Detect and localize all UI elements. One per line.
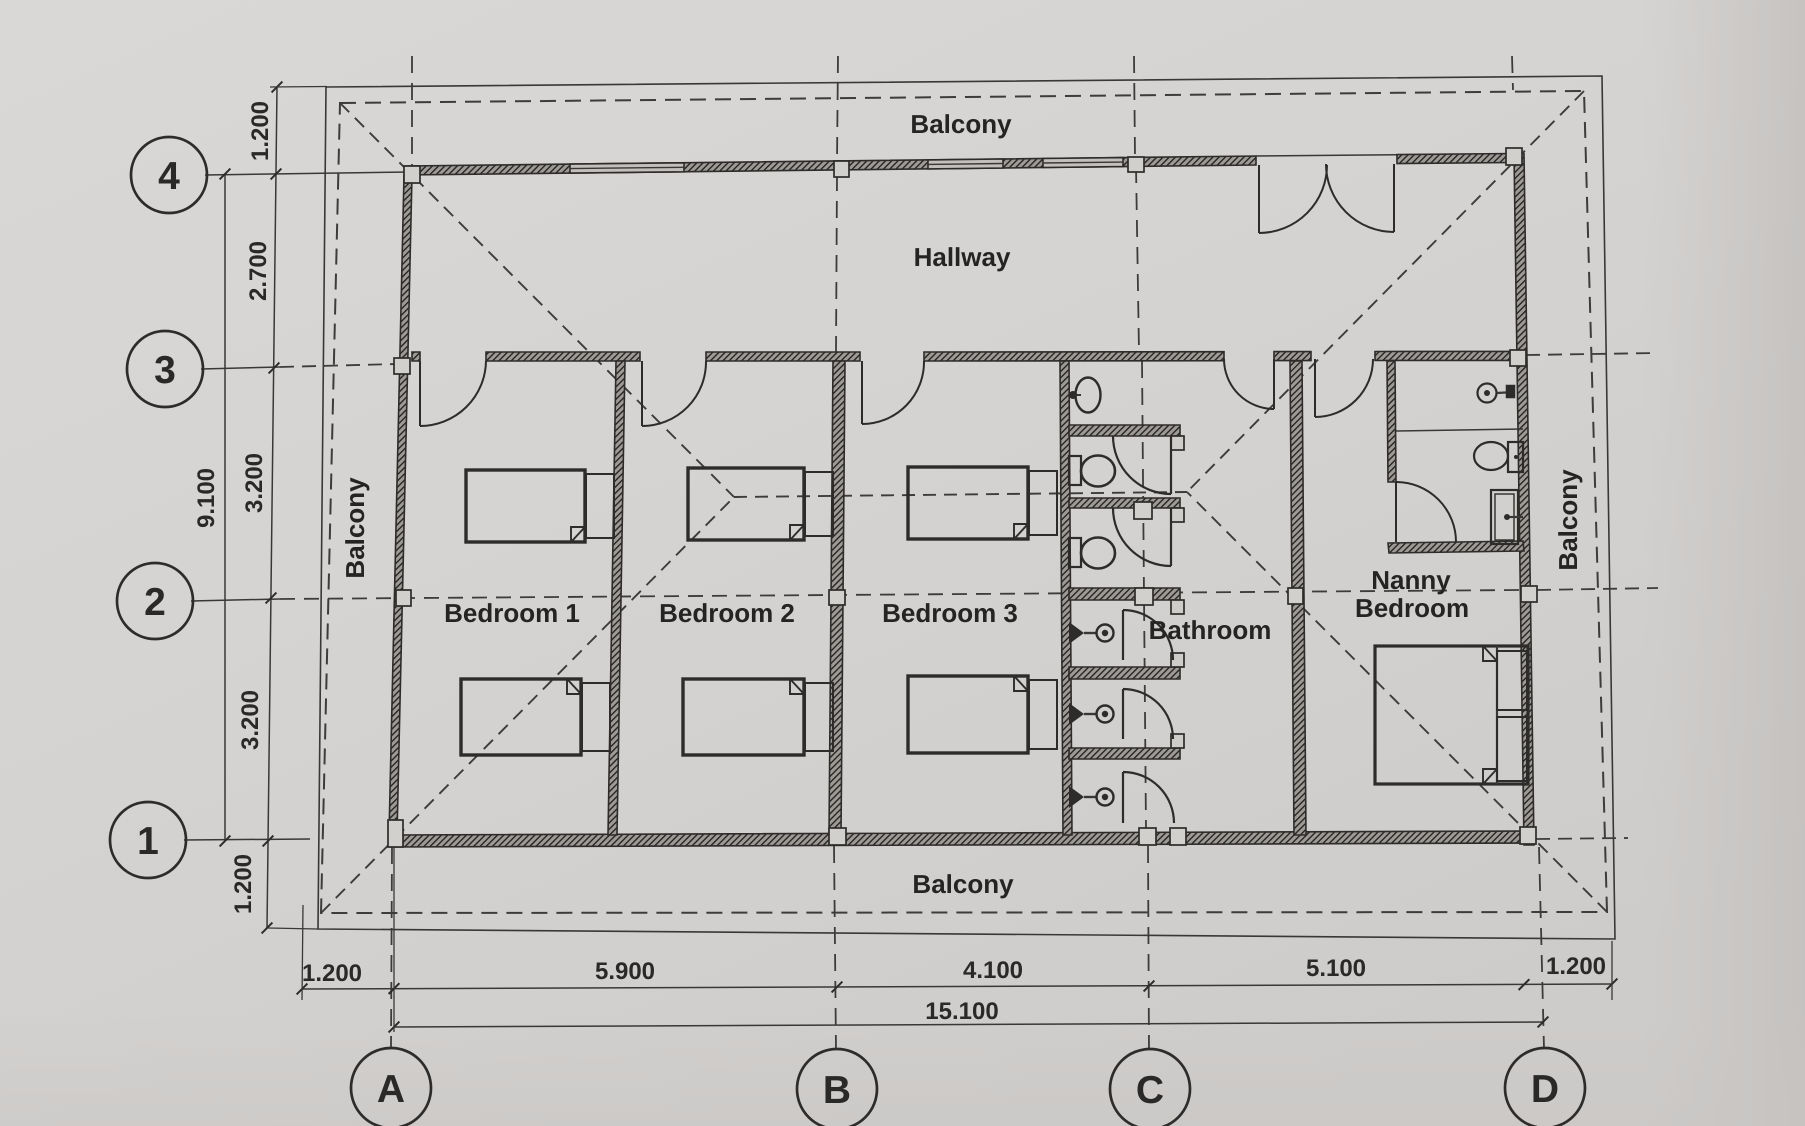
svg-text:C: C (1136, 1069, 1164, 1112)
svg-text:1.200: 1.200 (1546, 953, 1606, 980)
svg-text:Balcony: Balcony (1553, 469, 1583, 571)
svg-text:4.100: 4.100 (963, 957, 1023, 984)
svg-text:5.900: 5.900 (595, 958, 655, 985)
svg-text:5.100: 5.100 (1306, 955, 1366, 982)
svg-text:3.200: 3.200 (237, 690, 264, 750)
svg-text:Balcony: Balcony (912, 869, 1014, 899)
svg-text:3.200: 3.200 (241, 453, 268, 513)
svg-text:15.100: 15.100 (925, 998, 998, 1025)
svg-text:Balcony: Balcony (910, 109, 1012, 139)
svg-text:Bedroom 2: Bedroom 2 (659, 598, 795, 628)
svg-text:Bedroom 3: Bedroom 3 (882, 598, 1018, 628)
svg-text:1.200: 1.200 (302, 960, 362, 987)
svg-text:Hallway: Hallway (914, 242, 1011, 272)
svg-text:Bedroom 1: Bedroom 1 (444, 598, 580, 628)
svg-text:9.100: 9.100 (193, 468, 220, 528)
svg-text:2: 2 (144, 581, 166, 624)
svg-text:2.700: 2.700 (245, 241, 272, 301)
svg-text:3: 3 (154, 349, 176, 392)
svg-text:1.200: 1.200 (230, 854, 257, 914)
svg-text:D: D (1531, 1068, 1559, 1111)
svg-text:Bathroom: Bathroom (1149, 615, 1272, 645)
svg-text:4: 4 (158, 155, 180, 198)
svg-text:1: 1 (137, 820, 159, 863)
svg-text:1.200: 1.200 (247, 101, 274, 161)
svg-text:Bedroom: Bedroom (1355, 593, 1469, 623)
svg-text:Nanny: Nanny (1371, 565, 1451, 595)
svg-text:A: A (377, 1068, 405, 1111)
svg-text:Balcony: Balcony (340, 477, 370, 579)
svg-text:B: B (823, 1069, 851, 1112)
